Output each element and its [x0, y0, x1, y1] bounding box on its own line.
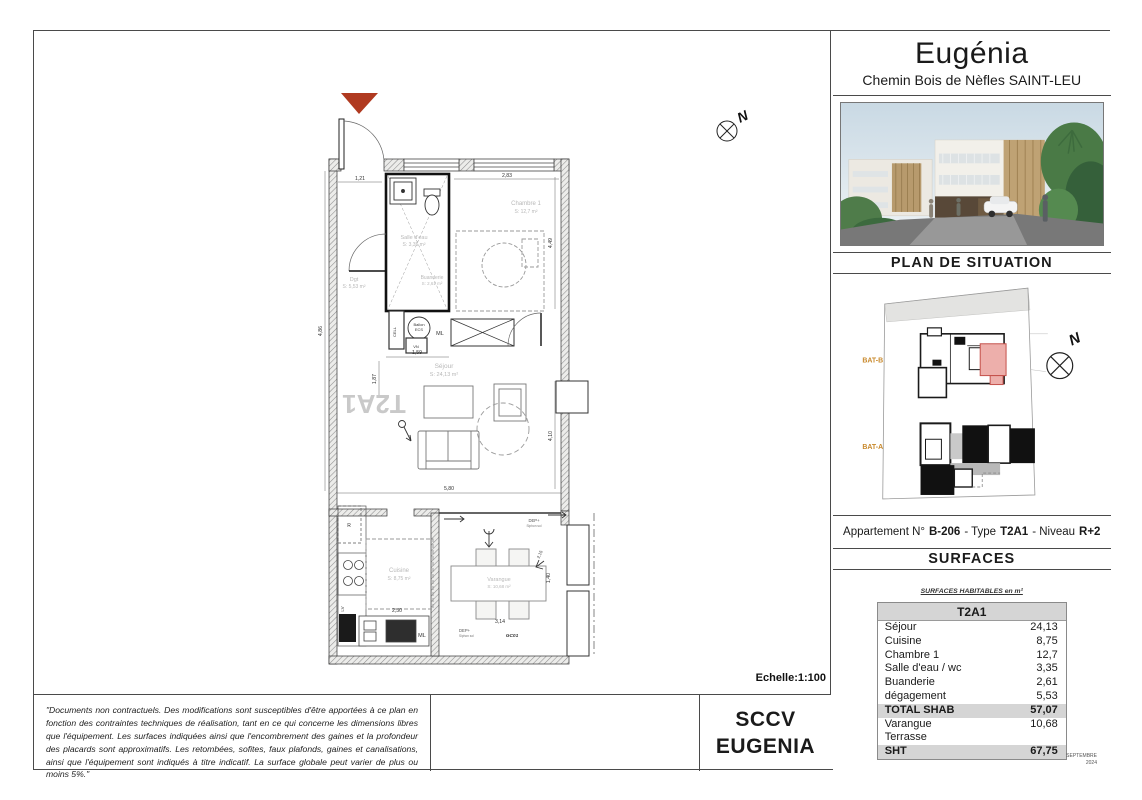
svg-text:GC01: GC01: [506, 633, 519, 639]
svg-text:4,10: 4,10: [548, 431, 554, 441]
svg-text:VN: VN: [413, 344, 419, 349]
svg-text:1,40: 1,40: [546, 573, 552, 583]
surface-row-label: dégagement: [885, 690, 946, 704]
electrical-symbol-icon: [399, 421, 412, 442]
date-year: 2024: [1086, 760, 1097, 766]
sofa: [418, 431, 479, 469]
coffee-table: [424, 386, 473, 418]
apartment-info: Appartement N° B-206 - Type T2A1 - Nivea…: [833, 516, 1112, 549]
svg-text:3,14: 3,14: [495, 619, 505, 625]
siteplan-north-label: N: [1066, 330, 1084, 350]
svg-text:Dgt: Dgt: [350, 277, 359, 283]
svg-text:S: 3,35 m²: S: 3,35 m²: [402, 242, 425, 248]
svg-text:S: 24,13 m²: S: 24,13 m²: [430, 372, 459, 378]
surfaces-table-rows: Séjour24,13Cuisine8,75Chambre 112,7Salle…: [878, 621, 1066, 759]
surface-row-value: 3,35: [1036, 662, 1057, 676]
apt-sep2: - Niveau: [1032, 526, 1075, 538]
svg-text:Varangue: Varangue: [487, 577, 510, 583]
surface-row-value: 12,7: [1036, 649, 1057, 663]
entrance-door: [339, 119, 384, 169]
svg-text:LV: LV: [340, 606, 345, 611]
svg-text:CELL: CELL: [392, 326, 397, 337]
building-rendering: [833, 96, 1112, 253]
svg-text:Cuisine: Cuisine: [389, 568, 410, 574]
surface-row-value: 5,53: [1036, 690, 1057, 704]
window-top-2: [474, 159, 554, 171]
apt-number: B-206: [929, 526, 960, 538]
surface-row-label: SHT: [885, 745, 907, 759]
window-top-1: [404, 159, 459, 171]
surface-row-value: 2,61: [1036, 676, 1057, 690]
svg-text:1,59: 1,59: [412, 350, 422, 356]
stove-icon: [344, 561, 364, 586]
wardrobe: [451, 319, 514, 346]
surfaces-title: SURFACES: [833, 549, 1112, 570]
apt-level: R+2: [1079, 526, 1100, 538]
company-name-line1: SCCV: [735, 706, 795, 733]
surface-row: SHT67,75: [878, 745, 1066, 759]
svg-text:1,87: 1,87: [372, 374, 378, 384]
svg-text:Chambre 1: Chambre 1: [511, 201, 541, 207]
varangue-pillars: [567, 525, 589, 656]
surface-row-label: Salle d'eau / wc: [885, 662, 962, 676]
surface-row: Varangue10,68: [878, 718, 1066, 732]
surfaces-table-area: SURFACES HABITABLES en m² T2A1 Séjour24,…: [833, 570, 1112, 770]
situation-plan: BAT-B N: [833, 274, 1112, 516]
svg-text:Siphon sol: Siphon sol: [459, 634, 474, 638]
bathroom-block: [349, 174, 449, 311]
svg-text:4,86: 4,86: [318, 326, 324, 336]
svg-text:2,15: 2,15: [536, 549, 544, 559]
kitchen-zone: [366, 539, 433, 609]
date-stamp: SEPTEMBRE 2024: [1066, 753, 1097, 766]
floor-plan-area: N T2A1 Chambre 1 S: 12,7 m² Salle d'eau …: [34, 31, 831, 694]
project-address: Chemin Bois de Nèfles SAINT-LEU: [833, 72, 1112, 88]
project-title-block: Eugénia Chemin Bois de Nèfles SAINT-LEU: [833, 31, 1112, 96]
surface-row-value: 8,75: [1036, 635, 1057, 649]
svg-text:Séjour: Séjour: [435, 363, 455, 370]
armchair: [494, 384, 526, 421]
surface-row-label: Varangue: [885, 718, 932, 732]
surface-row: Séjour24,13: [878, 621, 1066, 635]
company-cell: SCCV EUGENIA: [700, 695, 831, 771]
plan-sheet-page: N T2A1 Chambre 1 S: 12,7 m² Salle d'eau …: [0, 0, 1142, 800]
surfaces-table: T2A1 Séjour24,13Cuisine8,75Chambre 112,7…: [877, 602, 1067, 760]
svg-text:S: 5,53 m²: S: 5,53 m²: [342, 284, 365, 290]
entrance-marker-icon: [341, 93, 378, 114]
toilet-icon: [424, 189, 440, 215]
surface-row: TOTAL SHAB57,07: [878, 704, 1066, 718]
svg-text:ECS: ECS: [415, 327, 424, 332]
surface-row: Chambre 112,7: [878, 649, 1066, 663]
date-month: SEPTEMBRE: [1066, 753, 1097, 759]
disclaimer-cell: "Documents non contractuels. Des modific…: [34, 695, 431, 771]
surface-row: dégagement5,53: [878, 690, 1066, 704]
title-block-footer: "Documents non contractuels. Des modific…: [34, 694, 831, 771]
empty-cell: [431, 695, 700, 771]
surfaces-table-title: SURFACES HABITABLES en m²: [833, 588, 1112, 595]
building-rendering-image: [840, 102, 1105, 246]
svg-text:2,50: 2,50: [392, 608, 402, 614]
surface-row: Cuisine8,75: [878, 635, 1066, 649]
svg-text:ML: ML: [436, 331, 444, 337]
disclaimer-text: "Documents non contractuels. Des modific…: [46, 704, 418, 781]
surface-row-value: 24,13: [1030, 621, 1058, 635]
wall-box: [556, 381, 588, 413]
siteplan-north-icon: [1046, 353, 1072, 379]
surface-row-label: Chambre 1: [885, 649, 939, 663]
apt-type: T2A1: [1000, 526, 1028, 538]
bat-b-building: [918, 328, 1006, 398]
svg-text:4,49: 4,49: [548, 238, 554, 248]
bat-a-label: BAT-A: [862, 444, 883, 451]
surface-row-value: 57,07: [1030, 704, 1058, 718]
north-compass-icon: [717, 121, 737, 141]
company-name-line2: EUGENIA: [716, 733, 815, 760]
scale-note: Echelle:1:100: [756, 672, 826, 684]
unit-type-watermark: T2A1: [342, 389, 406, 419]
surface-row: Buanderie2,61: [878, 676, 1066, 690]
svg-text:S: 10,68 m²: S: 10,68 m²: [487, 584, 511, 589]
drawing-sheet-frame: N T2A1 Chambre 1 S: 12,7 m² Salle d'eau …: [33, 30, 1110, 770]
svg-text:R: R: [347, 523, 351, 529]
surface-row-label: Séjour: [885, 621, 917, 635]
surface-row-label: Buanderie: [885, 676, 935, 690]
svg-text:5,80: 5,80: [444, 486, 454, 492]
surface-row-value: 10,68: [1030, 718, 1058, 732]
slope-arrows: [444, 512, 566, 569]
surface-row-label: Terrasse: [885, 731, 927, 745]
apt-prefix: Appartement N°: [843, 526, 925, 538]
north-label: N: [735, 107, 752, 126]
svg-text:1,21: 1,21: [355, 176, 365, 182]
shower-icon: [390, 178, 416, 204]
surfaces-table-header: T2A1: [878, 603, 1066, 621]
svg-text:2,83: 2,83: [502, 173, 512, 179]
floor-plan-drawing: N T2A1 Chambre 1 S: 12,7 m² Salle d'eau …: [34, 31, 831, 694]
svg-text:S: 2,61 m²: S: 2,61 m²: [422, 281, 443, 286]
svg-text:DEP+: DEP+: [528, 518, 540, 523]
situation-plan-title: PLAN DE SITUATION: [833, 253, 1112, 274]
svg-text:Salle d'eau: Salle d'eau: [400, 235, 427, 241]
bed: [456, 231, 544, 311]
surface-row: Salle d'eau / wc3,35: [878, 662, 1066, 676]
svg-text:Siphon sol: Siphon sol: [527, 524, 542, 528]
svg-text:S: 12,7 m²: S: 12,7 m²: [514, 209, 537, 215]
surface-row-label: Cuisine: [885, 635, 922, 649]
bat-a-building: [920, 423, 1034, 495]
apt-sep1: - Type: [964, 526, 996, 538]
info-panel: Eugénia Chemin Bois de Nèfles SAINT-LEU: [833, 31, 1112, 771]
svg-text:S: 8,75 m²: S: 8,75 m²: [387, 576, 410, 582]
svg-text:DEP+: DEP+: [459, 628, 471, 633]
sink-unit: [359, 616, 429, 646]
shaft-black: [339, 614, 356, 642]
surface-row-label: TOTAL SHAB: [885, 704, 955, 718]
surface-row-value: 67,75: [1030, 745, 1058, 759]
project-title: Eugénia: [833, 37, 1112, 71]
svg-text:ML: ML: [418, 633, 426, 639]
bat-b-label: BAT-B: [862, 358, 883, 365]
floor-drain-arrow-icon: [484, 529, 494, 547]
situation-plan-drawing: BAT-B N: [833, 274, 1112, 515]
surface-row: Terrasse: [878, 731, 1066, 745]
